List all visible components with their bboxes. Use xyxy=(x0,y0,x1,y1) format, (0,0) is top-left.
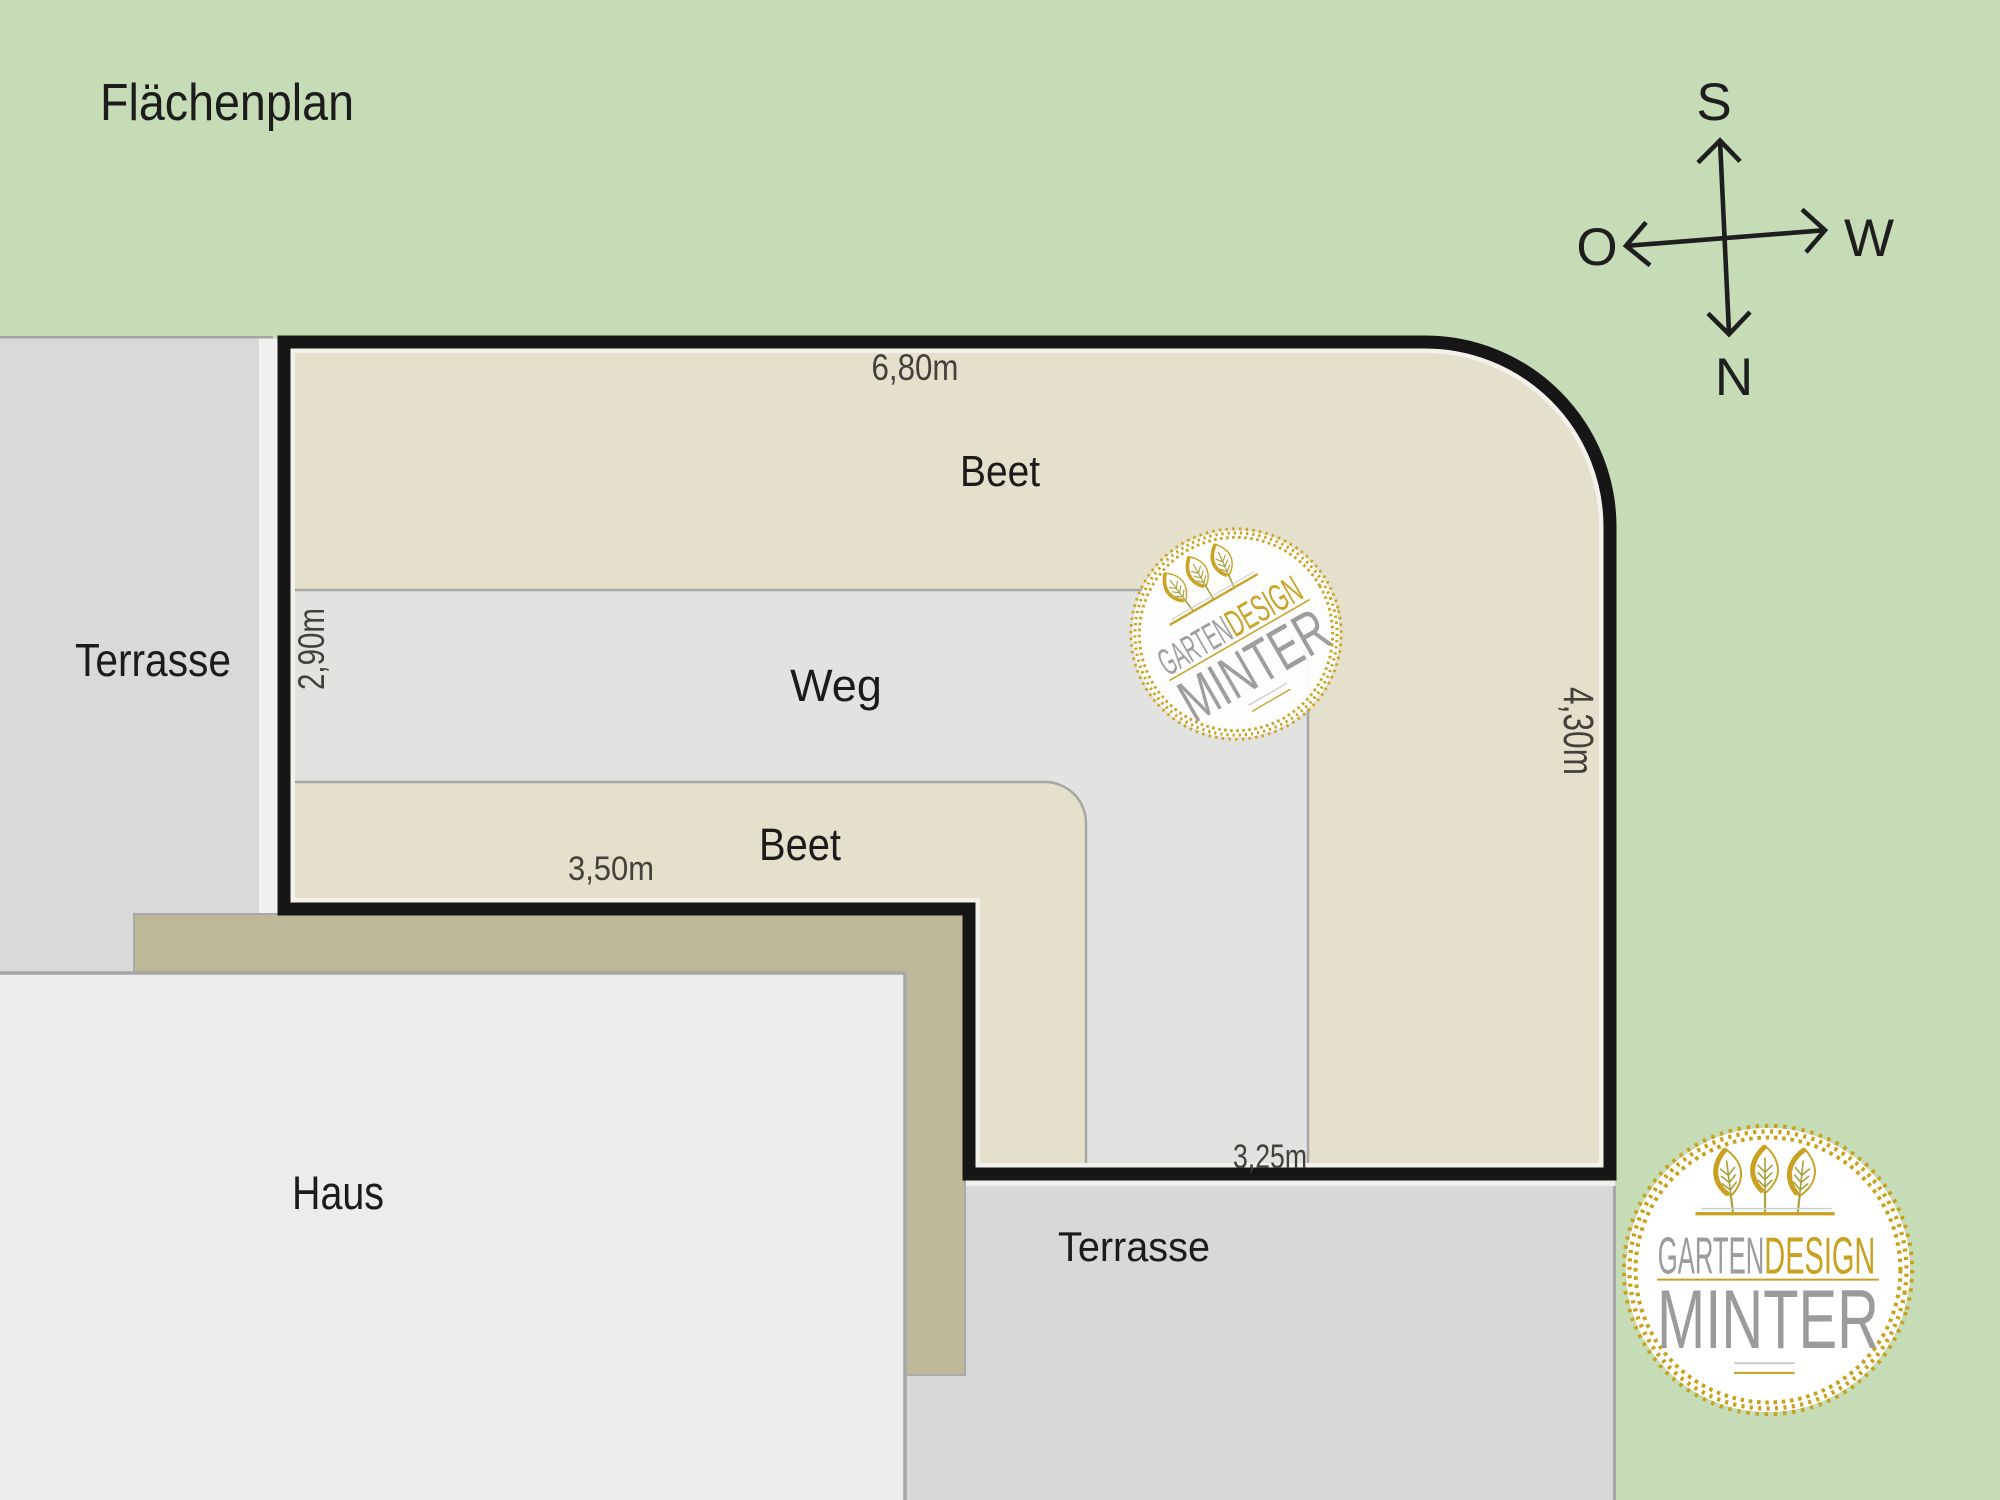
svg-text:Beet: Beet xyxy=(759,819,841,870)
svg-text:S: S xyxy=(1696,73,1731,132)
svg-text:W: W xyxy=(1844,209,1894,268)
svg-text:3,50m: 3,50m xyxy=(568,850,654,888)
svg-text:2,90m: 2,90m xyxy=(290,608,332,690)
svg-text:N: N xyxy=(1715,348,1753,407)
svg-text:Terrasse: Terrasse xyxy=(1058,1223,1210,1270)
svg-text:Terrasse: Terrasse xyxy=(75,634,231,686)
svg-text:Weg: Weg xyxy=(790,660,882,711)
svg-text:O: O xyxy=(1576,218,1617,277)
svg-text:4,30m: 4,30m xyxy=(1554,687,1601,775)
svg-text:Flächenplan: Flächenplan xyxy=(100,74,354,132)
svg-text:6,80m: 6,80m xyxy=(872,347,959,388)
svg-text:Beet: Beet xyxy=(960,447,1040,496)
svg-text:3,25m: 3,25m xyxy=(1233,1138,1307,1176)
svg-text:Haus: Haus xyxy=(292,1166,384,1219)
